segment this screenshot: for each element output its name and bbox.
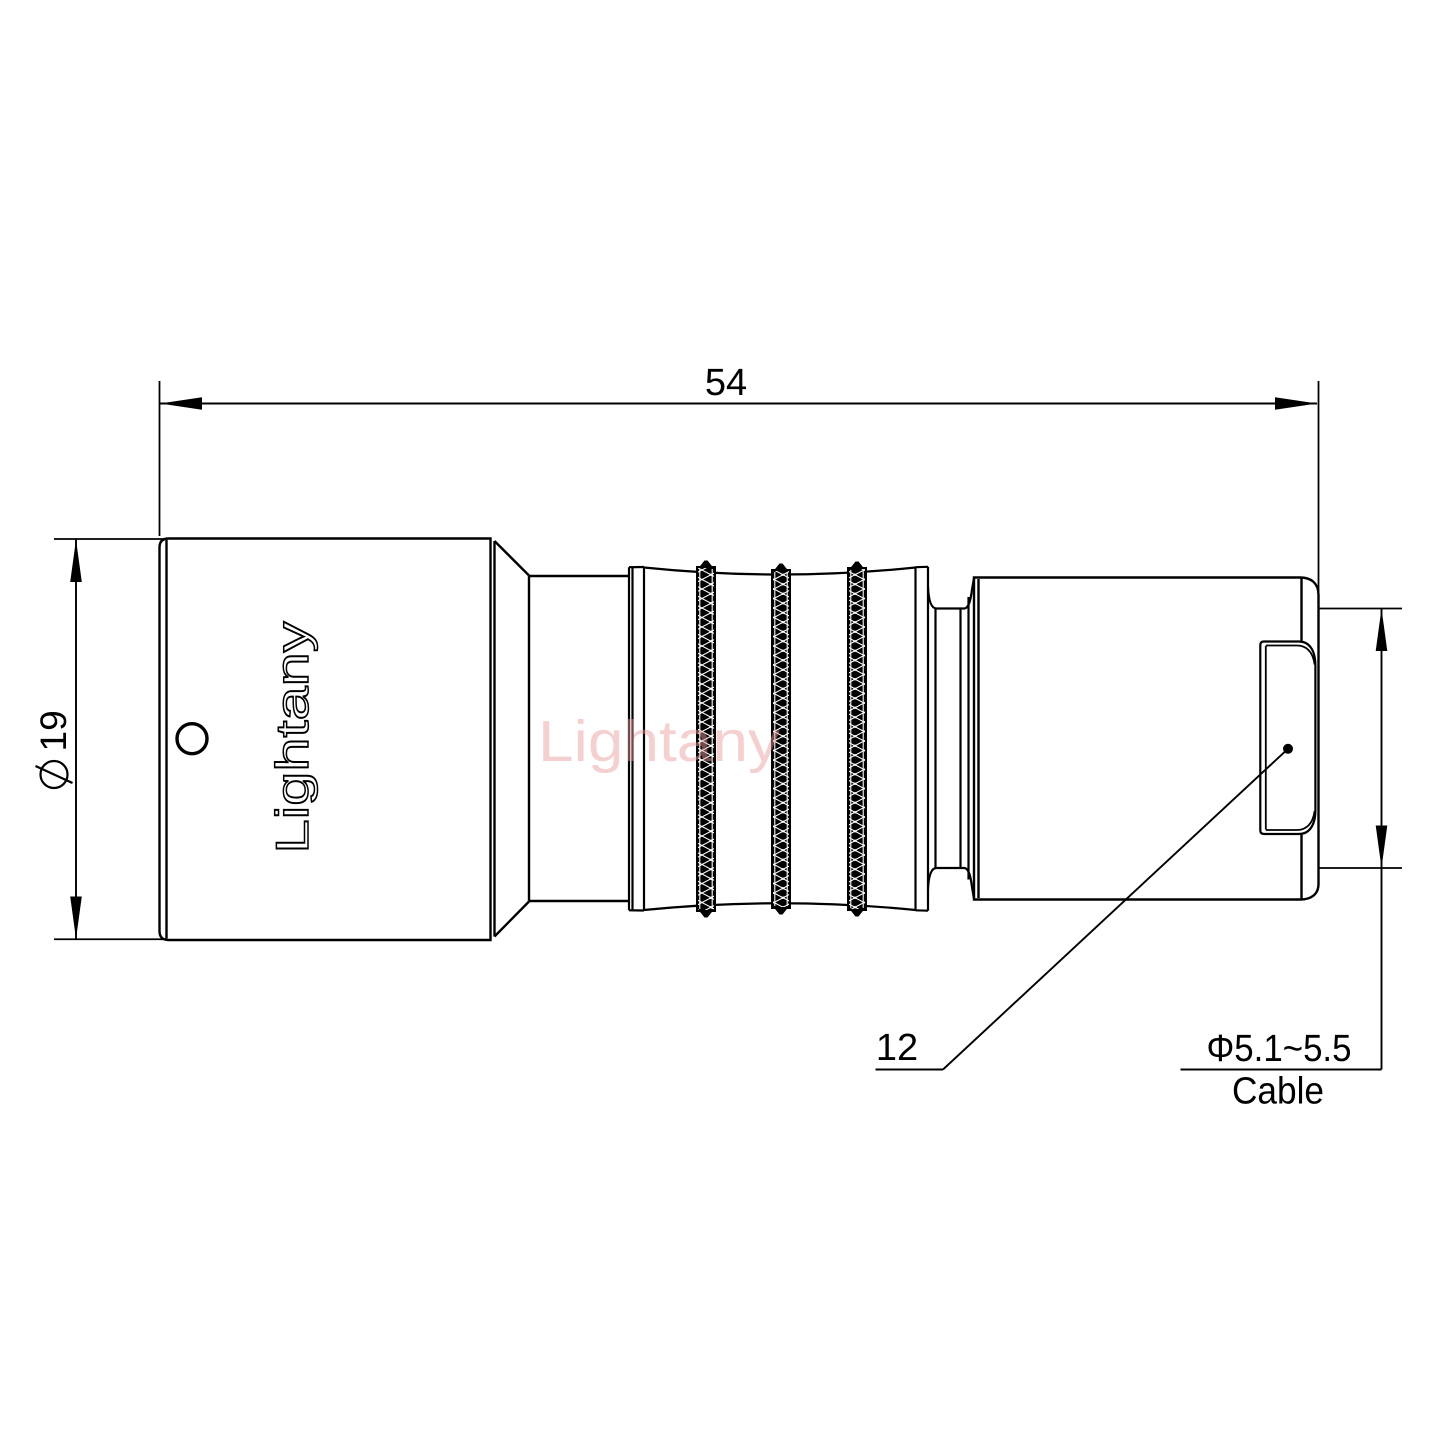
- svg-text:Φ5.1~5.5: Φ5.1~5.5: [1207, 1028, 1352, 1070]
- svg-text:12: 12: [876, 1027, 918, 1069]
- svg-text:54: 54: [705, 362, 747, 404]
- svg-text:Lightany: Lightany: [538, 709, 780, 774]
- svg-text:Lightany: Lightany: [266, 622, 318, 854]
- svg-text:Cable: Cable: [1232, 1071, 1324, 1113]
- svg-text:19: 19: [33, 710, 74, 751]
